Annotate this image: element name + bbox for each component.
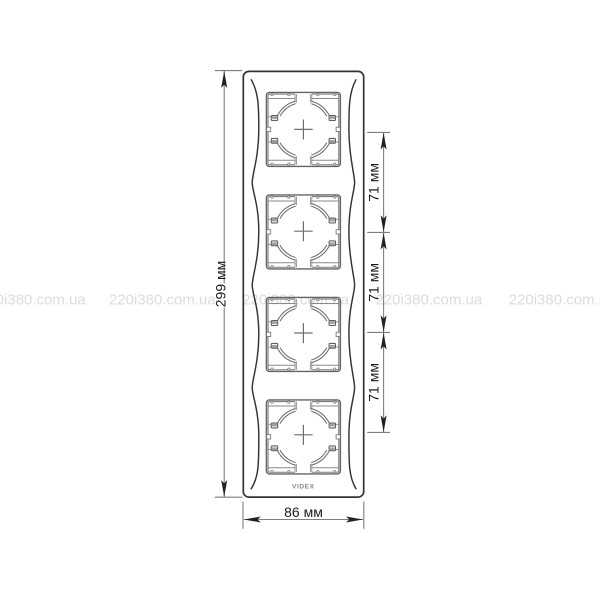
svg-text:71 мм: 71 мм [365, 363, 381, 402]
svg-text:220i380.com.ua: 220i380.com.ua [0, 292, 86, 309]
svg-text:71 мм: 71 мм [365, 263, 381, 302]
svg-text:220i380.com.ua: 220i380.com.ua [509, 292, 600, 309]
svg-text:71 мм: 71 мм [365, 163, 381, 202]
svg-text:86 мм: 86 мм [284, 504, 323, 520]
svg-text:299 мм: 299 мм [212, 261, 228, 308]
svg-text:VIDEX: VIDEX [292, 484, 315, 491]
svg-text:220i380.com.ua: 220i380.com.ua [109, 292, 216, 309]
svg-text:220i380.com.ua: 220i380.com.ua [375, 292, 482, 309]
